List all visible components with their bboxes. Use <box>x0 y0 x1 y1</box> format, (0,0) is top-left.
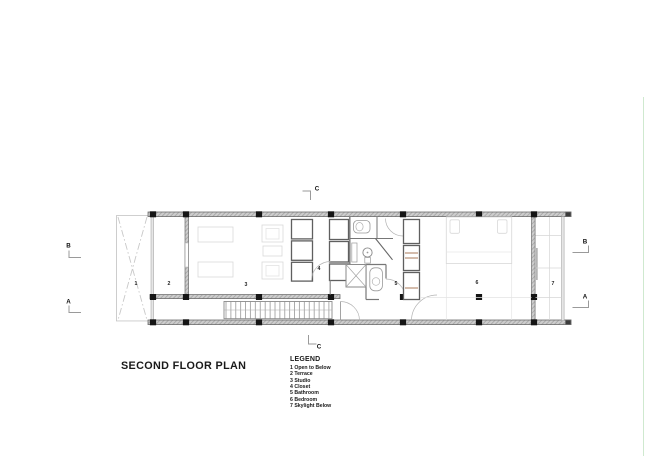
pillow <box>498 220 508 234</box>
page-title: SECOND FLOOR PLAN <box>121 360 246 372</box>
stair <box>224 302 332 319</box>
studio-furniture <box>198 225 283 279</box>
room-number-label: 4 <box>318 266 321 272</box>
closet-bank-east <box>404 220 420 300</box>
floor-plan-sheet: 1234567 BACCBA SECOND FLOOR PLAN LEGEND … <box>0 0 645 456</box>
legend-item-list: 1 Open to Below2 Terrace3 Studio4 Closet… <box>290 365 331 409</box>
section-marker-label: A <box>583 293 587 300</box>
section-marker-label: C <box>315 185 319 192</box>
room-number-label: 2 <box>168 281 171 287</box>
section-marker-label: B <box>583 238 587 245</box>
legend: LEGEND 1 Open to Below2 Terrace3 Studio4… <box>290 356 331 409</box>
shaft-skylight <box>346 265 366 288</box>
room-number-label: 6 <box>476 280 479 286</box>
section-marker-label: C <box>317 343 321 350</box>
skylight-grid <box>536 217 562 320</box>
section-marker-label: A <box>66 298 70 305</box>
open-to-below-region <box>116 216 148 321</box>
bedroom-furniture <box>420 217 532 320</box>
toilet-wc <box>370 268 383 291</box>
terrace-divider-wall <box>185 217 189 295</box>
room-number-label: 5 <box>395 281 398 287</box>
closet-bank-west <box>292 220 313 282</box>
room-number-label: 3 <box>245 282 248 288</box>
legend-title: LEGEND <box>290 356 331 363</box>
legend-item: 7 Skylight Below <box>290 403 331 409</box>
room-number-label: 1 <box>135 281 138 287</box>
room-number-label: 7 <box>552 281 555 287</box>
page-edge-line <box>643 97 645 456</box>
section-marker-label: B <box>66 243 70 250</box>
pillow <box>450 220 460 234</box>
